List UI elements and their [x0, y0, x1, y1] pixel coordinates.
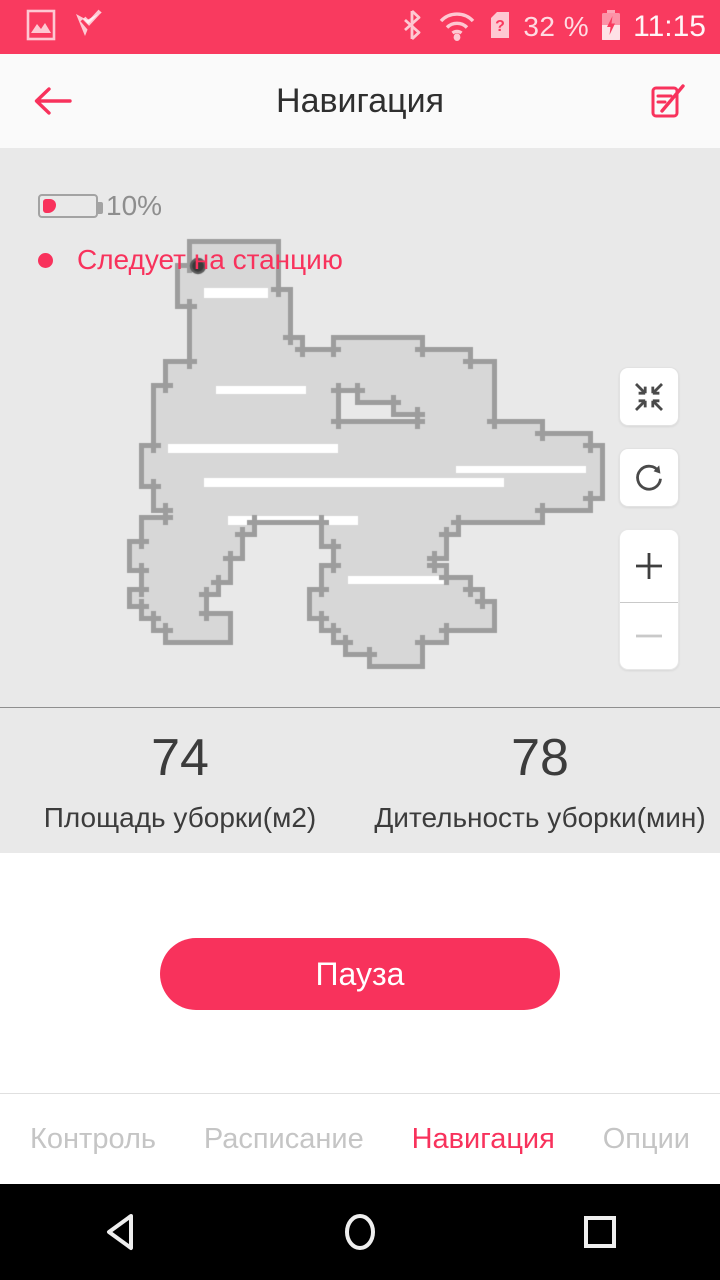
tab-control[interactable]: Контроль	[30, 1123, 156, 1156]
zoom-out-button[interactable]	[620, 603, 678, 669]
android-recents-button[interactable]	[480, 1214, 720, 1250]
edit-map-icon	[647, 80, 689, 122]
checkmark-app-icon	[72, 8, 106, 47]
clock-text: 11:15	[633, 10, 706, 44]
map-section: 10% Следует на станцию	[0, 148, 720, 707]
pause-button[interactable]: Пауза	[160, 938, 560, 1010]
status-dot-icon	[38, 253, 53, 268]
zoom-panel	[619, 529, 679, 670]
bottom-tab-bar: Контроль Расписание Навигация Опции	[0, 1093, 720, 1184]
status-bar: ? 32 % 11:15	[0, 0, 720, 54]
area-label: Площадь уборки(м2)	[44, 802, 317, 834]
zoom-in-button[interactable]	[620, 530, 678, 602]
cleaning-map[interactable]	[0, 148, 720, 707]
minus-icon	[629, 629, 669, 643]
android-navigation-bar	[0, 1184, 720, 1280]
wifi-icon	[437, 9, 477, 46]
screenshot-icon	[26, 9, 56, 46]
robot-battery-indicator: 10%	[38, 190, 162, 222]
plus-icon	[629, 546, 669, 586]
battery-charging-icon	[601, 9, 621, 46]
robot-status-row: Следует на станцию	[38, 244, 343, 276]
duration-value: 78	[511, 728, 569, 788]
tab-options[interactable]: Опции	[603, 1123, 690, 1156]
stat-area: 74 Площадь уборки(м2)	[0, 708, 360, 853]
android-back-button[interactable]	[0, 1213, 240, 1251]
back-arrow-icon	[30, 83, 74, 119]
tab-schedule[interactable]: Расписание	[204, 1123, 364, 1156]
duration-label: Дительность уборки(мин)	[374, 802, 705, 834]
rotate-icon	[629, 458, 669, 498]
center-map-button[interactable]	[619, 367, 679, 426]
svg-text:?: ?	[495, 18, 505, 35]
bluetooth-icon	[399, 9, 425, 46]
edit-map-button[interactable]	[640, 73, 696, 129]
battery-percent-text: 32 %	[523, 11, 589, 43]
android-home-button[interactable]	[240, 1212, 480, 1252]
map-controls	[619, 367, 679, 670]
home-circle-icon	[342, 1212, 378, 1252]
recents-square-icon	[582, 1214, 618, 1250]
robot-status-text: Следует на станцию	[77, 244, 343, 276]
sim-unknown-icon: ?	[489, 10, 511, 45]
collapse-arrows-icon	[629, 377, 669, 417]
cleaning-stats: 74 Площадь уборки(м2) 78 Дительность убо…	[0, 707, 720, 853]
rotate-map-button[interactable]	[619, 448, 679, 507]
robot-battery-label: 10%	[106, 190, 162, 222]
tab-navigation[interactable]: Навигация	[412, 1123, 555, 1156]
area-value: 74	[151, 728, 209, 788]
page-title: Навигация	[0, 82, 720, 121]
back-triangle-icon	[103, 1213, 137, 1251]
back-button[interactable]	[24, 73, 80, 129]
stat-duration: 78 Дительность уборки(мин)	[360, 708, 720, 853]
app-header: Навигация	[0, 54, 720, 148]
action-area: Пауза	[0, 853, 720, 1093]
robot-battery-icon	[38, 194, 98, 218]
